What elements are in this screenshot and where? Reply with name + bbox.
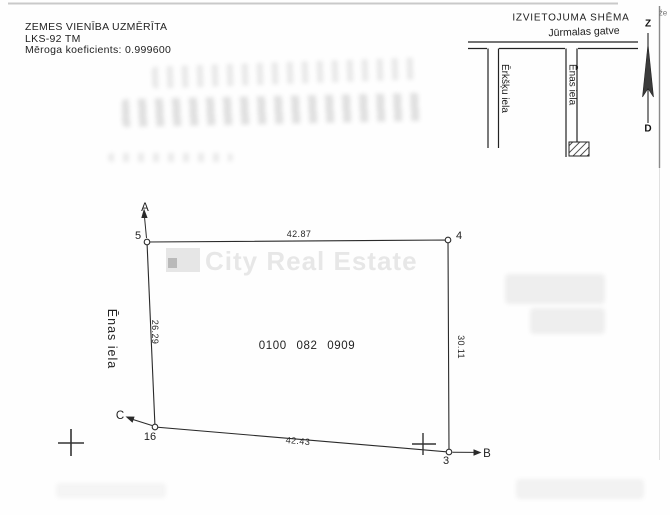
header-measured-note: ZEMES VIENĪBA UZMĒRĪTA	[25, 22, 171, 33]
dimension-top: 42.87	[287, 229, 312, 239]
grid-cross	[412, 433, 436, 455]
north-arrow	[643, 33, 654, 123]
point-label-3: 3	[443, 455, 449, 467]
dimension-right: 30.11	[456, 335, 466, 359]
schema-streets	[468, 42, 638, 157]
survey-plan-page: City Real Estate	[0, 0, 670, 515]
point-label-4: 4	[456, 230, 462, 242]
direction-arrow-c	[126, 417, 153, 426]
header-scale-coefficient: Mēroga koeficients: 0.999600	[25, 45, 171, 56]
direction-label-c: C	[116, 410, 124, 422]
page-edge-note: že	[659, 9, 667, 18]
scan-border	[8, 4, 660, 461]
street-label-enas-iela: Ēnas iela	[105, 309, 119, 369]
grid-cross	[58, 429, 84, 456]
dimension-left: 26.29	[150, 320, 160, 345]
cadastre-number: 0100 082 0909	[259, 340, 356, 352]
document-header: ZEMES VIENĪBA UZMĒRĪTA LKS-92 TM Mēroga …	[25, 22, 171, 57]
schema-street-erksku-iela: Ērkšķu iela	[499, 64, 510, 113]
header-coordinate-system: LKS-92 TM	[25, 34, 171, 45]
point-label-16: 16	[144, 431, 156, 443]
compass-north-label: Z	[645, 19, 651, 30]
schema-street-jurmalas-gatve: Jūrmalas gatve	[548, 25, 620, 39]
point-label-5: 5	[135, 230, 141, 242]
dimension-bottom: 42.43	[285, 435, 310, 447]
direction-label-b: B	[483, 448, 491, 460]
schema-parcel-hatch	[569, 142, 589, 156]
direction-arrow-b	[453, 449, 482, 455]
direction-label-a: A	[141, 202, 149, 214]
compass-south-label: D	[644, 124, 651, 135]
schema-street-enas-iela: Ēnas iela	[567, 64, 578, 105]
schema-title: IZVIETOJUMA SHĒMA	[512, 13, 629, 24]
